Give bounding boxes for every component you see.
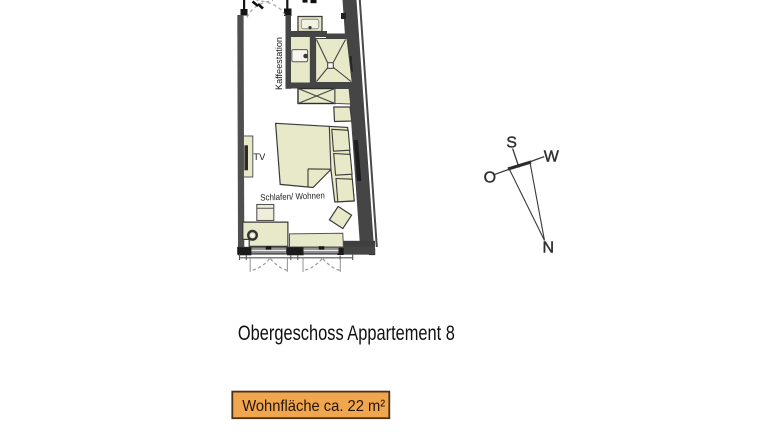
svg-text:Obergeschoss Appartement 8: Obergeschoss Appartement 8 [238,321,455,345]
svg-text:Kaffeestation: Kaffeestation [274,37,284,90]
svg-text:N: N [543,239,555,256]
svg-text:W: W [544,148,560,165]
svg-text:S: S [506,135,517,152]
svg-text:Wohnfläche ca. 22 m²: Wohnfläche ca. 22 m² [242,398,385,415]
svg-text:O: O [484,169,496,186]
svg-text:TV: TV [253,152,266,162]
